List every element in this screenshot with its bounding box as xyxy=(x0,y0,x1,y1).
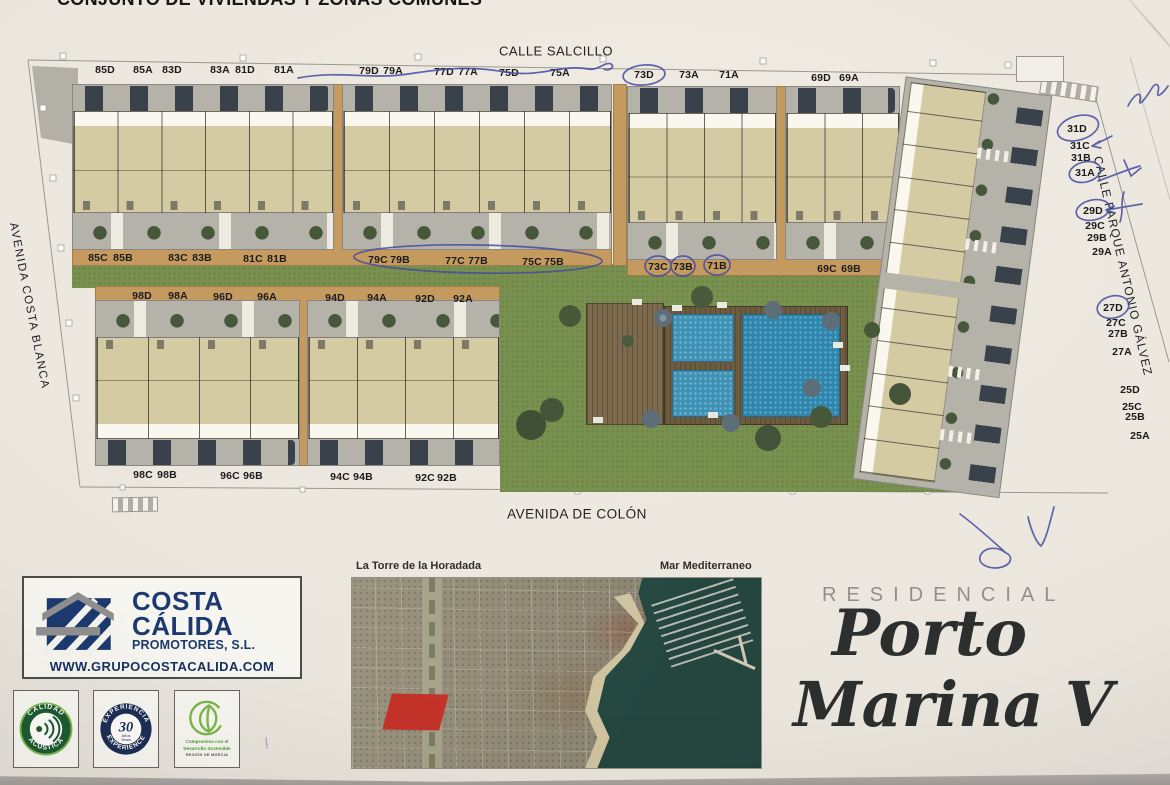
pen-circle-31D xyxy=(1055,111,1102,146)
pen-mark-29D xyxy=(1106,192,1142,222)
pen-arrow-31C xyxy=(1092,136,1112,148)
pen-annotations xyxy=(0,0,1170,785)
photographed-site-plan-page: CONJUNTO DE VIVIENDAS Y ZONAS COMUNES xyxy=(0,0,1170,785)
pen-circle-71B xyxy=(704,255,730,275)
pen-circle-73C xyxy=(645,256,671,276)
paper-sheet: CONJUNTO DE VIVIENDAS Y ZONAS COMUNES xyxy=(0,0,1170,785)
pen-corner-scribble xyxy=(1128,85,1168,106)
pen-circle-73B xyxy=(671,256,695,276)
pen-circle-27D xyxy=(1095,293,1131,322)
pen-circle-73D xyxy=(622,63,666,87)
pen-wavy-line xyxy=(298,63,613,78)
pen-stray-mark xyxy=(266,738,267,748)
pen-oval-79-75 xyxy=(354,243,602,275)
pen-flourish-31A xyxy=(1098,160,1141,181)
pen-signature-arrow xyxy=(960,507,1054,568)
